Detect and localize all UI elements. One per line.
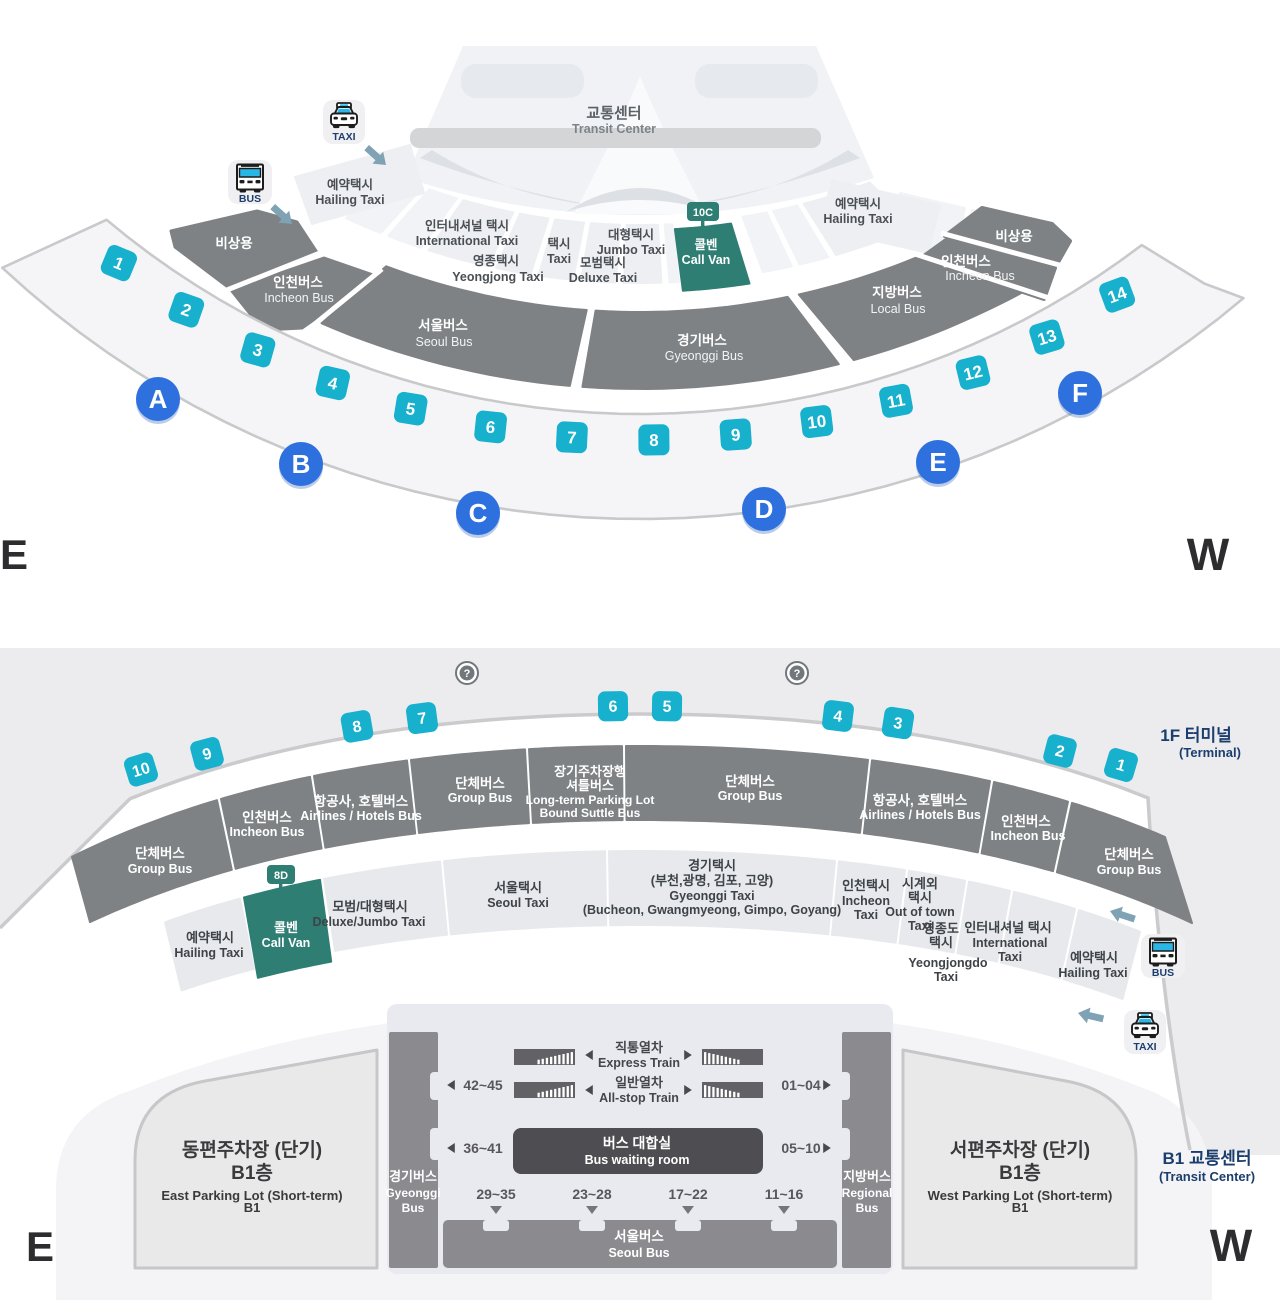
svg-text:버스 대합실: 버스 대합실 [603,1135,671,1151]
svg-text:Taxi: Taxi [998,950,1022,964]
svg-text:01~04: 01~04 [781,1077,821,1093]
svg-text:Express Train: Express Train [598,1056,680,1070]
svg-text:예약택시: 예약택시 [186,930,234,945]
svg-text:Gyeonggi Taxi: Gyeonggi Taxi [669,889,754,903]
svg-text:Taxi: Taxi [547,252,571,266]
svg-text:인터내셔널 택시: 인터내셔널 택시 [964,920,1051,935]
svg-text:1F 터미널: 1F 터미널 [1160,726,1231,745]
svg-text:11: 11 [886,390,907,412]
svg-text:(Terminal): (Terminal) [1179,745,1241,760]
svg-text:B: B [292,449,311,479]
svg-text:W: W [1187,529,1230,580]
svg-text:A: A [149,384,168,414]
svg-text:Incheon: Incheon [842,894,890,908]
svg-text:10C: 10C [693,207,713,219]
svg-text:Gyeonggi: Gyeonggi [385,1186,440,1200]
svg-text:Seoul Bus: Seoul Bus [416,335,473,349]
svg-text:항공사, 호텔버스: 항공사, 호텔버스 [873,792,968,808]
svg-text:비상용: 비상용 [215,236,252,251]
svg-text:Seoul Taxi: Seoul Taxi [487,896,549,910]
svg-text:42~45: 42~45 [463,1077,503,1093]
svg-text:Seoul Bus: Seoul Bus [608,1246,669,1260]
svg-text:일반열차: 일반열차 [615,1075,663,1090]
svg-text:7: 7 [567,428,577,447]
svg-text:인천버스: 인천버스 [1001,813,1051,829]
svg-text:Transit Center: Transit Center [572,122,656,136]
svg-text:영종택시: 영종택시 [473,253,519,268]
svg-text:동편주차장 (단기): 동편주차장 (단기) [182,1139,322,1161]
svg-text:E: E [929,447,946,477]
svg-text:지방버스: 지방버스 [872,284,922,300]
svg-text:Bus: Bus [856,1201,879,1215]
svg-text:D: D [755,494,774,524]
svg-text:Hailing Taxi: Hailing Taxi [1058,966,1127,980]
svg-text:Taxi: Taxi [934,970,958,984]
svg-text:단체버스: 단체버스 [1104,846,1154,862]
svg-text:(Transit Center): (Transit Center) [1159,1169,1255,1184]
svg-text:Out of town: Out of town [885,905,954,919]
svg-text:8: 8 [649,431,659,450]
svg-text:인천버스: 인천버스 [242,809,292,825]
svg-text:인천택시: 인천택시 [842,878,890,893]
svg-text:예약택시: 예약택시 [835,196,881,211]
svg-text:Incheon Bus: Incheon Bus [990,829,1065,843]
svg-text:All-stop Train: All-stop Train [599,1091,679,1105]
svg-text:Hailing Taxi: Hailing Taxi [823,212,892,226]
svg-text:Bus waiting room: Bus waiting room [585,1153,690,1167]
svg-text:예약택시: 예약택시 [327,177,373,192]
svg-text:단체버스: 단체버스 [455,775,505,791]
svg-text:B1: B1 [1012,1200,1029,1215]
svg-text:Long-term Parking Lot: Long-term Parking Lot [526,793,655,807]
svg-text:B1층: B1층 [231,1162,273,1184]
svg-text:셔틀버스: 셔틀버스 [566,778,614,793]
svg-text:6: 6 [485,417,496,437]
svg-text:대형택시: 대형택시 [608,227,654,242]
svg-text:Airlines / Hotels Bus: Airlines / Hotels Bus [859,808,981,822]
svg-text:인천버스: 인천버스 [941,253,991,269]
svg-text:서울버스: 서울버스 [418,317,468,333]
svg-text:Hailing Taxi: Hailing Taxi [315,193,384,207]
svg-text:W: W [1210,1220,1253,1271]
svg-text:Deluxe/Jumbo Taxi: Deluxe/Jumbo Taxi [313,915,426,929]
svg-text:Local Bus: Local Bus [871,302,926,316]
svg-text:경기택시: 경기택시 [688,858,736,873]
svg-text:10: 10 [806,411,827,432]
svg-text:TAXI: TAXI [1133,1041,1156,1053]
svg-text:E: E [0,531,28,578]
svg-text:05~10: 05~10 [781,1140,821,1156]
svg-text:36~41: 36~41 [463,1140,503,1156]
svg-text:택시: 택시 [908,890,932,905]
svg-text:모범택시: 모범택시 [580,255,626,270]
svg-text:B1 교통센터: B1 교통센터 [1162,1149,1251,1168]
svg-text:Bound Suttle Bus: Bound Suttle Bus [540,806,641,820]
svg-text:Taxi: Taxi [854,908,878,922]
svg-text:Hailing Taxi: Hailing Taxi [174,946,243,960]
svg-text:Jumbo Taxi: Jumbo Taxi [597,243,666,257]
svg-text:비상용: 비상용 [995,229,1032,244]
svg-text:International Taxi: International Taxi [416,234,519,248]
svg-text:BUS: BUS [239,193,261,205]
svg-text:F: F [1072,378,1088,408]
svg-text:TAXI: TAXI [332,131,355,143]
svg-text:Group Bus: Group Bus [718,789,783,803]
svg-text:8D: 8D [274,870,288,882]
svg-text:C: C [469,498,488,528]
svg-text:시계외: 시계외 [902,876,938,891]
svg-text:항공사, 호텔버스: 항공사, 호텔버스 [314,793,409,809]
svg-text:서편주차장 (단기): 서편주차장 (단기) [950,1139,1090,1161]
svg-text:6: 6 [608,699,617,716]
svg-text:Deluxe Taxi: Deluxe Taxi [569,271,638,285]
svg-text:Group Bus: Group Bus [1097,863,1162,877]
svg-text:Airlines / Hotels Bus: Airlines / Hotels Bus [300,809,422,823]
svg-text:콜벤: 콜벤 [274,920,298,935]
svg-text:인천버스: 인천버스 [273,274,323,290]
svg-text:11~16: 11~16 [765,1186,804,1202]
svg-text:Call Van: Call Van [262,936,311,950]
svg-text:지방버스: 지방버스 [843,1169,891,1184]
svg-text:Yeongjong Taxi: Yeongjong Taxi [452,270,543,284]
svg-text:택시: 택시 [929,935,953,950]
svg-text:23~28: 23~28 [572,1186,612,1202]
svg-text:단체버스: 단체버스 [725,773,775,789]
svg-text:E: E [26,1223,54,1270]
svg-text:Group Bus: Group Bus [448,791,513,805]
svg-text:?: ? [794,668,801,680]
svg-text:모범/대형택시: 모범/대형택시 [332,899,407,914]
svg-text:(부천,광명, 김포, 고양): (부천,광명, 김포, 고양) [651,873,773,888]
svg-text:29~35: 29~35 [476,1186,516,1202]
svg-text:Incheon Bus: Incheon Bus [229,825,304,839]
svg-text:교통센터: 교통센터 [586,105,641,122]
svg-text:경기버스: 경기버스 [677,332,727,348]
svg-text:콜벤: 콜벤 [694,237,717,252]
svg-text:택시: 택시 [547,236,570,251]
svg-text:Yeongjongdo: Yeongjongdo [908,956,988,970]
svg-text:B1: B1 [244,1200,261,1215]
svg-text:직통열차: 직통열차 [615,1040,663,1055]
svg-text:Call Van: Call Van [682,253,731,267]
svg-text:5: 5 [662,699,671,716]
svg-text:단체버스: 단체버스 [135,845,185,861]
svg-text:경기버스: 경기버스 [389,1169,437,1184]
svg-text:Incheon Bus: Incheon Bus [264,291,334,305]
svg-text:서울버스: 서울버스 [614,1228,664,1244]
svg-text:Incheon Bus: Incheon Bus [945,269,1015,283]
svg-text:서울택시: 서울택시 [494,880,542,895]
svg-text:International: International [972,936,1047,950]
svg-text:Bus: Bus [402,1201,425,1215]
svg-text:B1층: B1층 [999,1162,1041,1184]
svg-text:장기주차장행: 장기주차장행 [554,764,626,779]
svg-text:17~22: 17~22 [668,1186,708,1202]
svg-text:Gyeonggi Bus: Gyeonggi Bus [665,349,744,363]
svg-text:9: 9 [730,425,741,445]
svg-text:BUS: BUS [1152,967,1174,979]
svg-text:?: ? [464,668,471,680]
svg-text:영종도: 영종도 [923,921,959,936]
svg-text:인터내셔널 택시: 인터내셔널 택시 [425,218,509,233]
svg-text:Group Bus: Group Bus [128,862,193,876]
svg-text:Regional: Regional [842,1186,893,1200]
svg-text:(Bucheon, Gwangmyeong, Gimpo,: (Bucheon, Gwangmyeong, Gimpo, Goyang) [583,903,841,917]
svg-text:예약택시: 예약택시 [1070,950,1118,965]
